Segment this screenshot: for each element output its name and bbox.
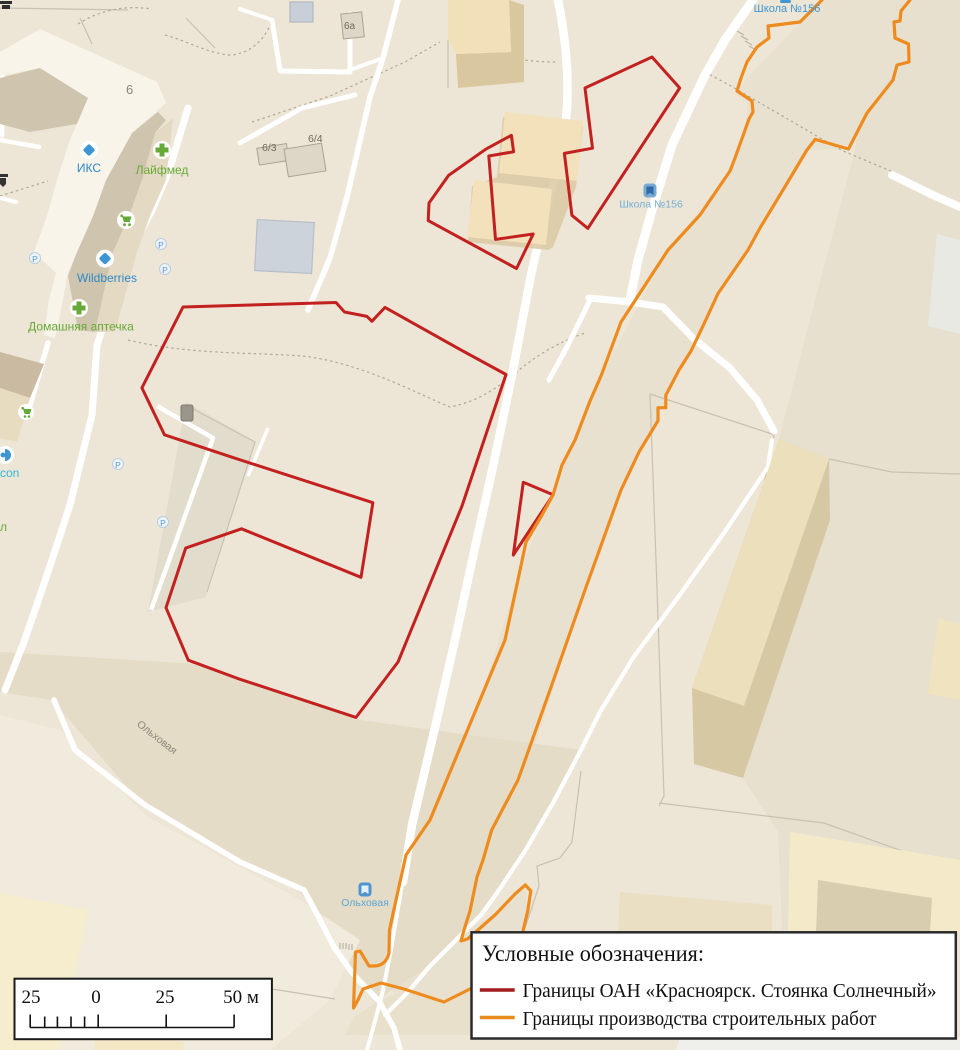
- svg-text:50 м: 50 м: [223, 987, 259, 1008]
- svg-text:P: P: [32, 254, 38, 264]
- svg-text:25: 25: [156, 987, 175, 1008]
- svg-text:P: P: [160, 518, 166, 528]
- svg-text:Wildberries: Wildberries: [77, 271, 137, 285]
- svg-text:P: P: [115, 460, 121, 470]
- svg-text:Границы производства строитель: Границы производства строительных работ: [523, 1008, 877, 1030]
- svg-text:6: 6: [126, 82, 133, 97]
- svg-text:Школа №156: Школа №156: [619, 199, 683, 211]
- svg-text:con: con: [0, 466, 19, 480]
- svg-text:л: л: [0, 520, 7, 534]
- svg-text:25: 25: [22, 987, 41, 1008]
- svg-text:6/4: 6/4: [308, 133, 323, 145]
- svg-text:Ольховая: Ольховая: [341, 897, 389, 909]
- svg-text:P: P: [162, 265, 168, 275]
- svg-text:Домашняя аптечка: Домашняя аптечка: [28, 320, 134, 334]
- svg-text:Условные обозначения:: Условные обозначения:: [482, 941, 704, 966]
- svg-text:0: 0: [91, 987, 101, 1008]
- svg-text:6а: 6а: [344, 21, 356, 32]
- svg-text:Границы ОАН «Красноярск. Сто: Границы ОАН «Красноярск. Стоянка Солнечн…: [523, 980, 937, 1002]
- svg-text:ИКС: ИКС: [77, 161, 101, 175]
- svg-text:Школа №156: Школа №156: [754, 3, 821, 15]
- svg-text:Лайфмед: Лайфмед: [136, 163, 189, 177]
- svg-text:P: P: [158, 240, 164, 250]
- svg-text:6/3: 6/3: [262, 142, 277, 154]
